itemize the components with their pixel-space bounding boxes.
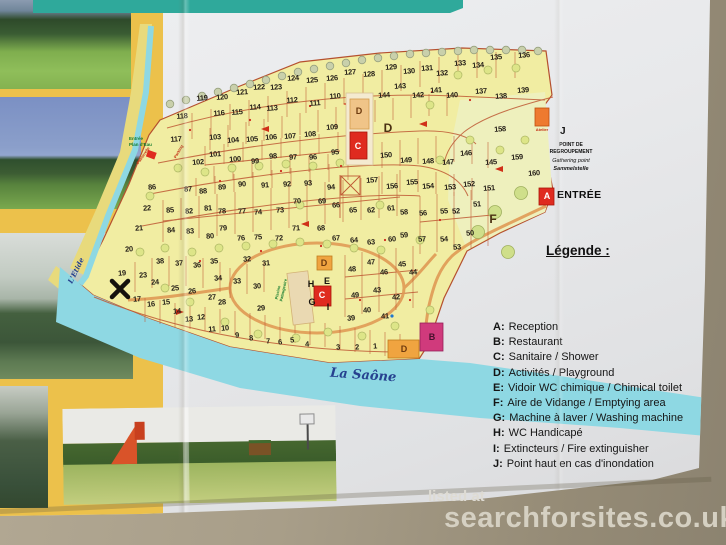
plot-number-119: 119 (196, 93, 208, 103)
gathering-point-line4: Sammelstelle (539, 166, 603, 172)
plot-number-105: 105 (246, 134, 258, 144)
plot-number-138: 138 (495, 91, 507, 101)
plot-number-156: 156 (386, 181, 398, 191)
legend-list: A:ReceptionB:RestaurantC:Sanitaire / Sho… (493, 320, 708, 472)
plot-number-88: 88 (199, 186, 207, 196)
plot-number-142: 142 (412, 90, 424, 100)
legend-item-I: I:Extincteurs / Fire extinguisher (493, 442, 708, 457)
legend-item-C: C:Sanitaire / Shower (493, 350, 708, 365)
plot-number-75: 75 (254, 232, 262, 242)
plot-number-40: 40 (363, 305, 371, 315)
plot-number-134: 134 (472, 60, 484, 70)
legend-title: Légende : (546, 243, 610, 258)
plot-number-51: 51 (473, 199, 481, 209)
plot-number-33: 33 (233, 276, 241, 286)
facility-letter-D: D (356, 106, 363, 116)
facility-letter-H: H (308, 279, 315, 289)
plot-number-155: 155 (406, 177, 418, 187)
plot-number-53: 53 (453, 242, 461, 252)
atelier-label: Atelier (531, 127, 553, 132)
plot-number-136: 136 (518, 50, 530, 60)
plot-number-43: 43 (373, 285, 381, 295)
plot-number-26: 26 (188, 286, 196, 296)
plot-number-19: 19 (118, 268, 126, 278)
plot-number-23: 23 (139, 270, 147, 280)
plot-number-69: 69 (318, 196, 326, 206)
plot-number-159: 159 (511, 152, 523, 162)
plot-number-67: 67 (332, 233, 340, 243)
plot-number-110: 110 (329, 91, 341, 101)
plot-number-34: 34 (214, 273, 222, 283)
plot-number-154: 154 (422, 181, 434, 191)
plot-number-71: 71 (292, 223, 300, 233)
plot-number-115: 115 (231, 107, 243, 117)
plot-number-131: 131 (421, 63, 433, 73)
plot-number-64: 64 (350, 235, 358, 245)
plot-number-22: 22 (143, 203, 151, 213)
plot-number-28: 28 (218, 297, 226, 307)
plot-number-124: 124 (287, 73, 299, 83)
plot-number-11: 11 (208, 324, 216, 333)
plot-number-122: 122 (253, 82, 265, 92)
plot-number-91: 91 (261, 180, 269, 190)
plot-number-85: 85 (166, 205, 174, 215)
plot-number-12: 12 (197, 312, 205, 322)
plot-number-129: 129 (385, 62, 397, 72)
plot-number-41: 41 (381, 311, 389, 321)
plot-number-78: 78 (218, 206, 226, 216)
plot-number-66: 66 (332, 200, 340, 210)
plot-number-150: 150 (380, 150, 392, 160)
plot-number-32: 32 (243, 254, 251, 264)
plot-number-86: 86 (148, 182, 156, 192)
plot-number-74: 74 (254, 207, 262, 217)
plot-number-84: 84 (167, 225, 175, 235)
plot-number-25: 25 (171, 283, 179, 293)
plot-number-36: 36 (193, 260, 201, 270)
plot-number-58: 58 (400, 207, 408, 217)
plot-number-57: 57 (418, 234, 426, 244)
plot-number-82: 82 (185, 206, 193, 216)
plot-number-9: 9 (235, 330, 239, 339)
plot-number-111: 111 (309, 98, 320, 108)
plot-number-5: 5 (290, 335, 294, 344)
plot-number-141: 141 (430, 85, 442, 95)
plot-number-123: 123 (270, 82, 282, 92)
plot-number-98: 98 (269, 151, 277, 161)
plot-number-139: 139 (517, 85, 529, 95)
plot-number-1: 1 (373, 341, 377, 350)
plot-number-95: 95 (331, 147, 339, 157)
plot-number-31: 31 (262, 258, 270, 268)
plot-number-80: 80 (206, 231, 214, 241)
legend-item-F: F:Aire de Vidange / Emptying area (493, 396, 708, 411)
plot-number-97: 97 (289, 152, 297, 162)
plot-number-30: 30 (253, 281, 261, 291)
legend-item-D: D:Activités / Playground (493, 366, 708, 381)
facility-letter-B: B (429, 332, 436, 342)
plot-number-27: 27 (208, 292, 216, 302)
plot-number-135: 135 (490, 52, 502, 62)
legend-item-J: J:Point haut en cas d'inondation (493, 457, 708, 472)
plot-number-62: 62 (367, 205, 375, 215)
plot-number-148: 148 (422, 156, 434, 166)
plot-number-52: 52 (452, 206, 460, 216)
plot-number-73: 73 (276, 205, 284, 215)
facility-letter-G: G (308, 297, 315, 307)
plot-number-59: 59 (400, 230, 408, 240)
plot-number-93: 93 (304, 178, 312, 188)
plot-number-3: 3 (336, 342, 340, 351)
plot-number-94: 94 (327, 182, 335, 192)
plot-number-48: 48 (348, 264, 356, 274)
plot-number-143: 143 (394, 81, 406, 91)
plot-number-65: 65 (349, 205, 357, 215)
plot-number-126: 126 (326, 73, 338, 83)
plot-number-17: 17 (133, 294, 141, 304)
plot-number-77: 77 (238, 206, 246, 216)
plot-number-49: 49 (351, 290, 359, 300)
plot-number-112: 112 (286, 95, 298, 105)
plot-number-149: 149 (400, 155, 412, 165)
plot-number-6: 6 (278, 337, 282, 346)
facility-letter-C: C (319, 290, 326, 300)
plot-number-114: 114 (249, 102, 261, 112)
facility-letter-I: I (327, 302, 330, 312)
plot-number-106: 106 (265, 132, 277, 142)
plot-number-125: 125 (306, 75, 318, 85)
facility-letter-D: D (384, 121, 393, 135)
plot-number-4: 4 (305, 339, 309, 348)
plot-number-7: 7 (266, 336, 270, 345)
plot-number-102: 102 (192, 157, 204, 167)
gathering-point-line2: REGROUPEMENT (539, 149, 603, 155)
plot-number-13: 13 (185, 314, 193, 324)
gathering-point-line3: Gathering point (539, 158, 603, 164)
plot-number-21: 21 (135, 223, 143, 233)
legend-item-B: B:Restaurant (493, 335, 708, 350)
facility-letter-D: D (321, 258, 328, 268)
plot-number-99: 99 (251, 156, 259, 166)
plot-number-70: 70 (293, 196, 301, 206)
plot-number-10: 10 (221, 323, 229, 333)
plot-number-38: 38 (156, 256, 164, 266)
plan-eau-label: Entrée Plan d'Eau (129, 136, 152, 147)
watermark-site: searchforsites.co.uk (444, 502, 726, 535)
plot-number-147: 147 (442, 157, 454, 167)
plot-number-116: 116 (213, 108, 225, 118)
plot-number-89: 89 (218, 182, 226, 192)
plot-number-130: 130 (403, 66, 415, 76)
plot-number-81: 81 (204, 203, 212, 213)
plot-number-50: 50 (466, 228, 474, 238)
plot-number-103: 103 (209, 132, 221, 142)
gathering-point-letter: J (560, 126, 566, 137)
plot-number-145: 145 (485, 157, 497, 167)
plot-number-2: 2 (355, 342, 359, 351)
plot-number-151: 151 (483, 183, 495, 193)
plot-number-83: 83 (186, 226, 194, 236)
plot-number-144: 144 (378, 90, 390, 100)
plot-number-35: 35 (210, 256, 218, 266)
plot-number-72: 72 (275, 233, 283, 243)
plot-number-140: 140 (446, 90, 458, 100)
plot-number-100: 100 (229, 154, 241, 164)
plot-number-56: 56 (419, 208, 427, 218)
plot-number-157: 157 (366, 175, 378, 185)
plot-number-128: 128 (363, 69, 375, 79)
plot-number-76: 76 (237, 233, 245, 243)
plot-number-29: 29 (257, 303, 265, 313)
plot-number-153: 153 (444, 182, 456, 192)
plot-number-46: 46 (380, 267, 388, 277)
plot-number-20: 20 (125, 244, 133, 254)
plot-number-127: 127 (344, 67, 356, 77)
facility-letter-E: E (324, 276, 330, 286)
plot-number-108: 108 (304, 129, 316, 139)
facility-letter-D: D (401, 344, 408, 354)
plot-number-104: 104 (227, 135, 239, 145)
plot-number-87: 87 (184, 184, 192, 194)
entrance-label: ENTRÉE (557, 189, 601, 201)
plot-number-44: 44 (409, 267, 417, 277)
legend-item-H: H:WC Handicapé (493, 426, 708, 441)
plot-number-133: 133 (454, 58, 466, 68)
plot-number-54: 54 (440, 234, 448, 244)
plot-number-61: 61 (387, 203, 395, 213)
plot-number-96: 96 (309, 152, 317, 162)
gathering-point-line1: POINT DE (539, 142, 603, 148)
plot-number-132: 132 (436, 68, 448, 78)
plot-number-37: 37 (175, 258, 183, 268)
plot-number-152: 152 (463, 179, 475, 189)
plot-number-68: 68 (317, 223, 325, 233)
plot-number-15: 15 (162, 297, 170, 307)
plot-number-137: 137 (475, 86, 487, 96)
plot-number-55: 55 (440, 206, 448, 216)
facility-letter-C: C (355, 141, 362, 151)
plot-number-146: 146 (460, 148, 472, 158)
plot-number-92: 92 (283, 179, 291, 189)
plot-number-158: 158 (494, 124, 506, 134)
plot-number-39: 39 (347, 313, 355, 323)
plot-number-16: 16 (147, 299, 155, 309)
plot-number-107: 107 (284, 131, 296, 141)
brochure-paper: 1234567891011121314151617192021222324252… (0, 0, 726, 545)
plot-number-113: 113 (266, 103, 278, 113)
legend-item-A: A:Reception (493, 320, 708, 335)
plot-number-60: 60 (388, 234, 396, 244)
plot-number-45: 45 (398, 259, 406, 269)
plot-number-42: 42 (392, 292, 400, 302)
plot-number-118: 118 (176, 111, 188, 121)
plot-number-120: 120 (216, 92, 228, 102)
plot-number-47: 47 (367, 257, 375, 267)
plot-number-109: 109 (326, 122, 338, 132)
legend-item-G: G:Machine à laver / Washing machine (493, 411, 708, 426)
plot-number-101: 101 (209, 149, 221, 159)
plot-number-117: 117 (170, 134, 182, 144)
plot-number-24: 24 (151, 277, 159, 287)
plot-number-63: 63 (367, 237, 375, 247)
plot-number-14: 14 (173, 306, 181, 316)
facility-letter-F: F (489, 212, 496, 226)
facility-letter-A: A (544, 191, 551, 201)
legend-item-E: E:Vidoir WC chimique / Chimical toilet (493, 381, 708, 396)
plot-number-121: 121 (236, 87, 248, 97)
plot-number-8: 8 (249, 333, 253, 342)
plot-number-90: 90 (238, 179, 246, 189)
campsite-map-brochure-photo: 1234567891011121314151617192021222324252… (0, 0, 726, 545)
plot-number-79: 79 (219, 223, 227, 233)
